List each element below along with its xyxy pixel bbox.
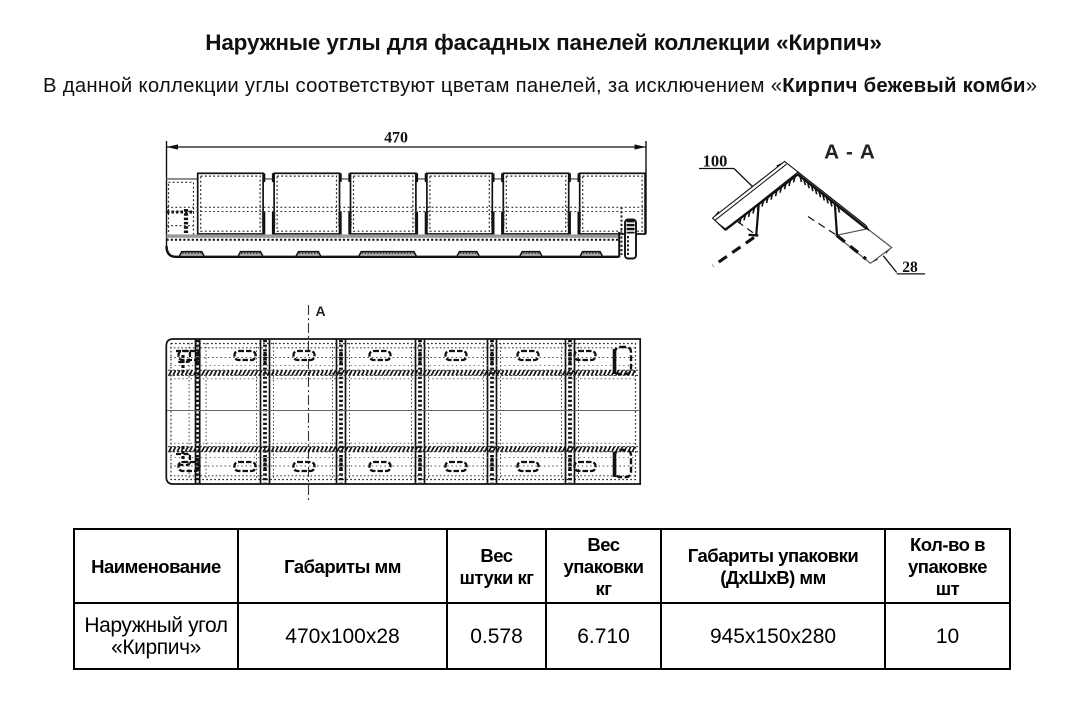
svg-text:470: 470: [384, 129, 408, 146]
svg-text:A: A: [315, 303, 325, 319]
svg-text:28: 28: [902, 259, 918, 276]
svg-text:100: 100: [703, 152, 728, 171]
svg-text:A - A: A - A: [824, 141, 876, 164]
